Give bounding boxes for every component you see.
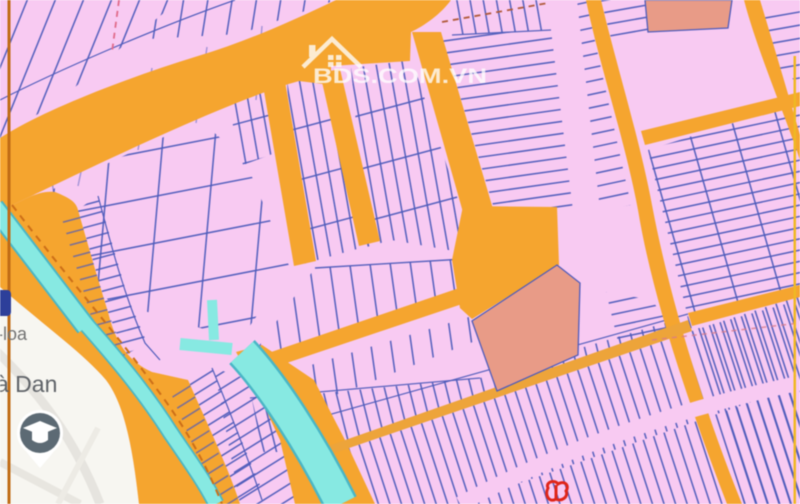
- svg-text:-loa: -loa: [0, 324, 28, 344]
- svg-text:à Dan: à Dan: [0, 371, 57, 397]
- svg-text:BDS.COM.VN: BDS.COM.VN: [313, 65, 487, 88]
